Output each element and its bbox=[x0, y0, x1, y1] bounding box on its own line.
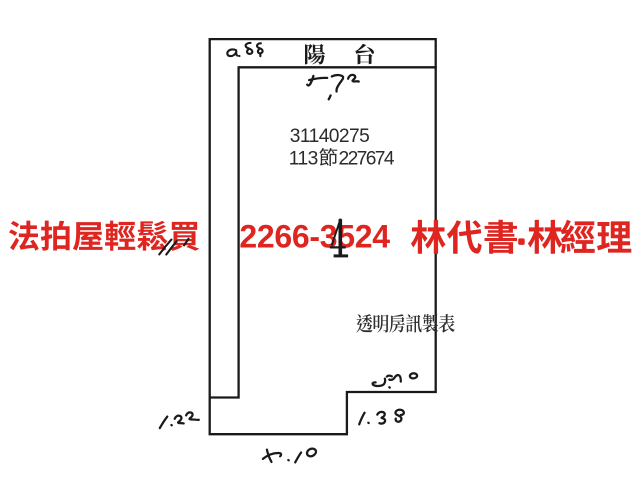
svg-text:227674: 227674 bbox=[339, 149, 395, 170]
svg-text:113: 113 bbox=[289, 149, 319, 170]
svg-text:2266-3524: 2266-3524 bbox=[239, 218, 390, 254]
svg-text:31140275: 31140275 bbox=[290, 126, 370, 147]
